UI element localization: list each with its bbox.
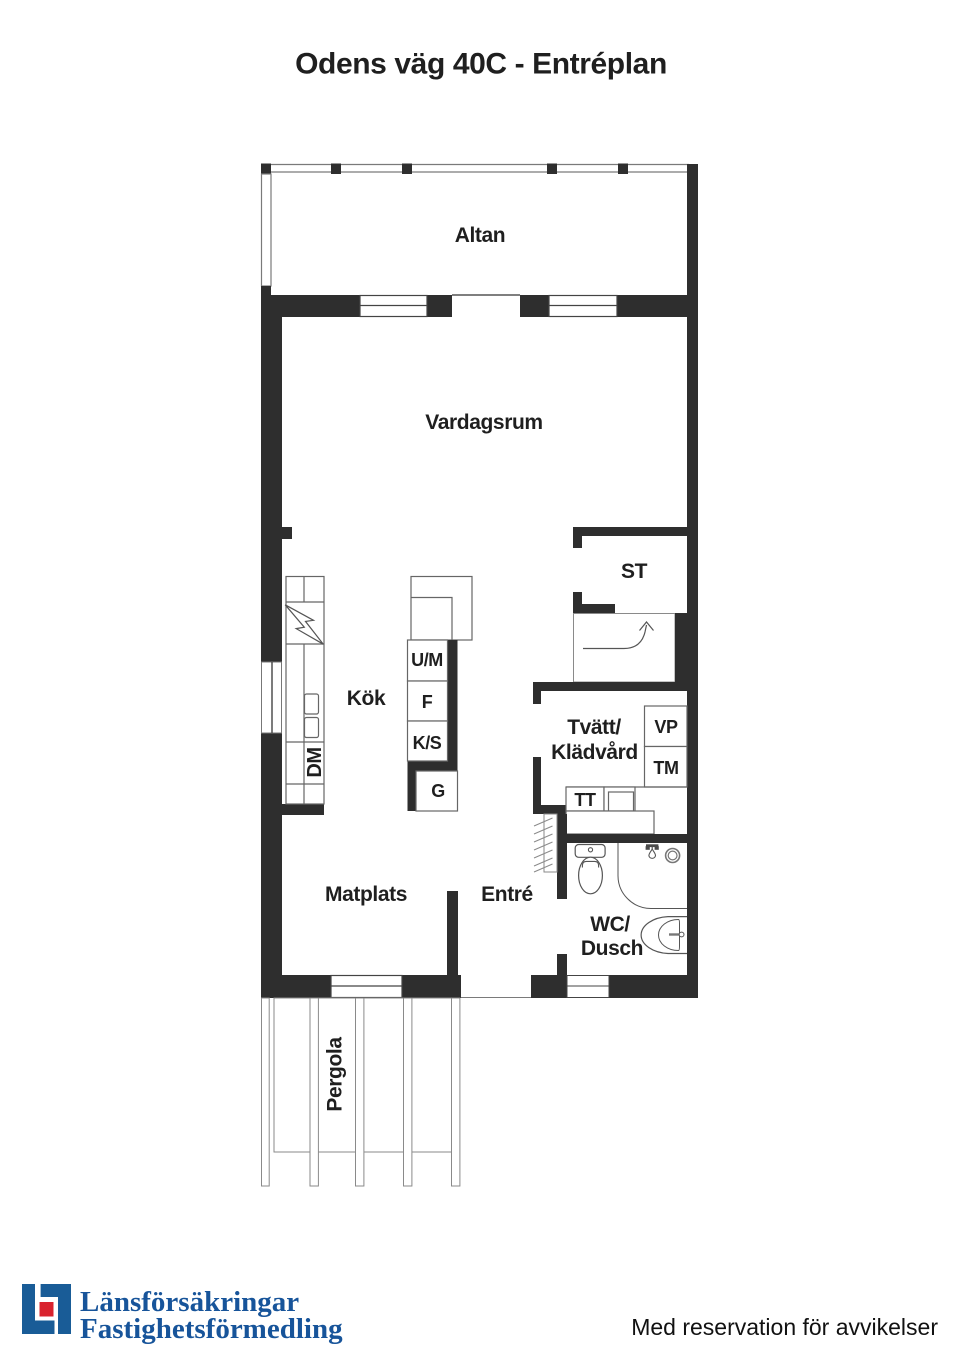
svg-text:Klädvård: Klädvård bbox=[551, 741, 638, 764]
svg-text:Odens väg 40C - Entréplan: Odens väg 40C - Entréplan bbox=[295, 48, 667, 81]
svg-text:Vardagsrum: Vardagsrum bbox=[425, 411, 542, 434]
svg-text:K/S: K/S bbox=[413, 733, 442, 753]
svg-text:VP: VP bbox=[654, 717, 678, 737]
svg-text:ST: ST bbox=[621, 560, 648, 583]
svg-text:Kök: Kök bbox=[347, 687, 386, 710]
svg-text:Entré: Entré bbox=[481, 883, 533, 906]
svg-text:Pergola: Pergola bbox=[324, 1037, 347, 1112]
svg-text:F: F bbox=[422, 692, 433, 712]
svg-text:Dusch: Dusch bbox=[581, 937, 643, 960]
svg-text:Med reservation för avvikelser: Med reservation för avvikelser bbox=[631, 1314, 938, 1340]
svg-text:WC/: WC/ bbox=[590, 913, 630, 936]
svg-text:G: G bbox=[431, 781, 445, 801]
svg-text:U/M: U/M bbox=[411, 650, 443, 670]
svg-text:Altan: Altan bbox=[455, 224, 506, 247]
svg-text:DM: DM bbox=[304, 747, 326, 777]
svg-text:TM: TM bbox=[653, 758, 678, 778]
svg-text:Matplats: Matplats bbox=[325, 883, 407, 906]
svg-text:Fastighetsförmedling: Fastighetsförmedling bbox=[80, 1313, 343, 1345]
svg-text:Tvätt/: Tvätt/ bbox=[567, 716, 621, 739]
svg-text:TT: TT bbox=[574, 790, 596, 810]
